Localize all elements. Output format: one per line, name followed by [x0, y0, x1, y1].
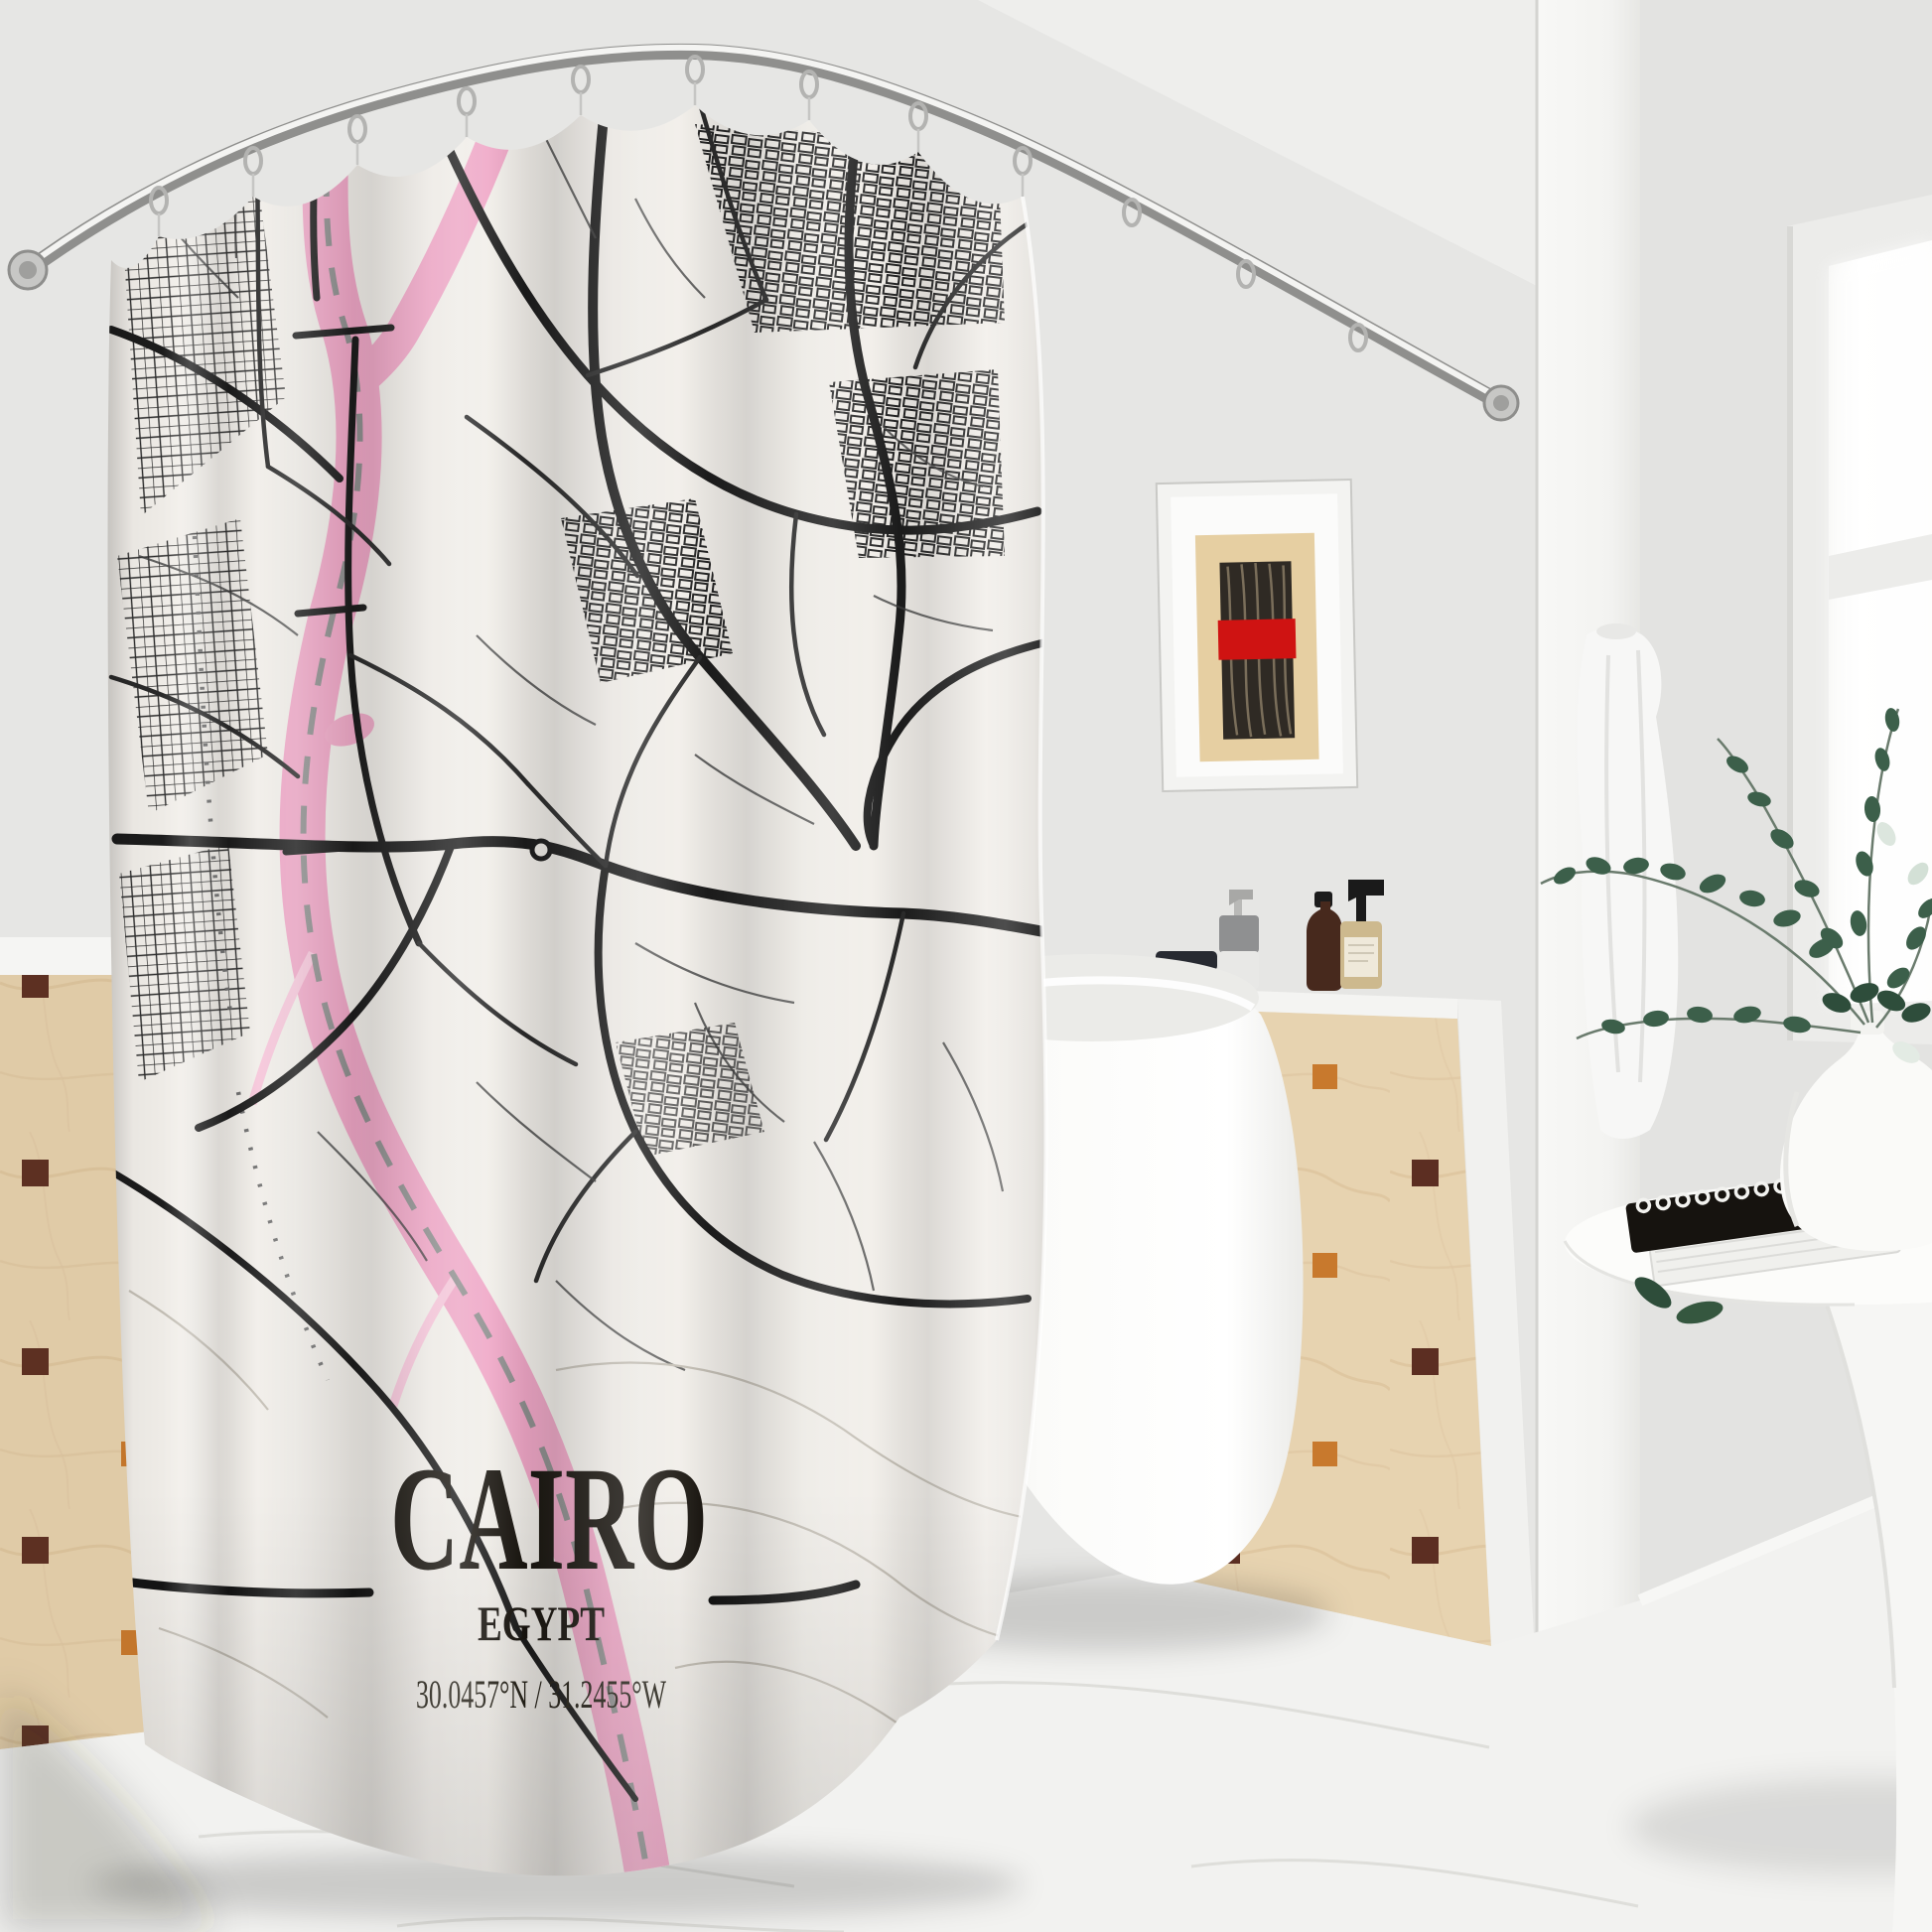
- framed-art: [1157, 480, 1357, 791]
- towel-hook: [1596, 623, 1636, 639]
- scene-canvas: CAIRO EGYPT 30.0457°N / 31.2455°W: [0, 0, 1932, 1932]
- art-red-band: [1218, 619, 1297, 660]
- rod-flange-left-hub: [19, 261, 37, 279]
- shower-curtain: CAIRO EGYPT 30.0457°N / 31.2455°W: [89, 40, 1082, 1906]
- bathroom-product-photo: CAIRO EGYPT 30.0457°N / 31.2455°W: [0, 0, 1932, 1932]
- rod-flange-right-hub: [1493, 395, 1509, 411]
- window-glow: [1829, 240, 1932, 1005]
